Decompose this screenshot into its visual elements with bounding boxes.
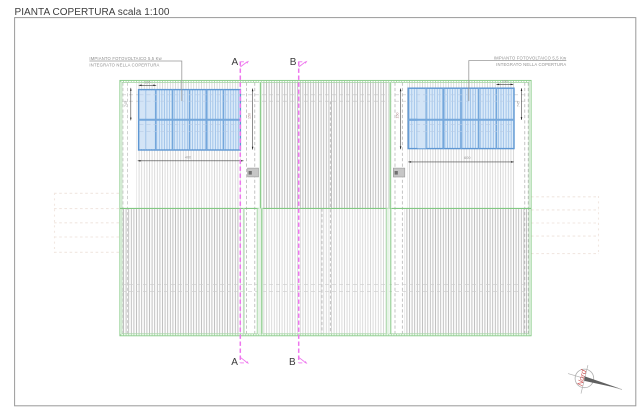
- svg-text:745: 745: [516, 101, 520, 107]
- svg-text:INTEGRATO NELLA COPERTURA: INTEGRATO NELLA COPERTURA: [89, 63, 159, 68]
- svg-text:600: 600: [464, 156, 470, 160]
- svg-text:PIANTA COPERTURA scala 1:100: PIANTA COPERTURA scala 1:100: [15, 7, 170, 18]
- svg-text:100: 100: [502, 80, 508, 84]
- svg-text:400: 400: [185, 156, 191, 160]
- svg-text:745: 745: [124, 101, 128, 107]
- svg-text:B: B: [289, 357, 296, 368]
- svg-text:INTEGRATO NELLA COPERTURA: INTEGRATO NELLA COPERTURA: [496, 62, 566, 67]
- svg-text:150: 150: [247, 113, 251, 119]
- svg-text:IMPIANTO FOTOVOLTAICO 5,5 Kw: IMPIANTO FOTOVOLTAICO 5,5 Kw: [89, 56, 162, 61]
- svg-text:IMPIANTO FOTOVOLTAICO 5,5 Kw: IMPIANTO FOTOVOLTAICO 5,5 Kw: [494, 56, 567, 61]
- svg-text:150: 150: [395, 113, 399, 119]
- svg-text:A: A: [232, 57, 239, 68]
- svg-text:B: B: [290, 57, 297, 68]
- svg-text:100: 100: [144, 81, 150, 85]
- svg-text:A: A: [231, 357, 238, 368]
